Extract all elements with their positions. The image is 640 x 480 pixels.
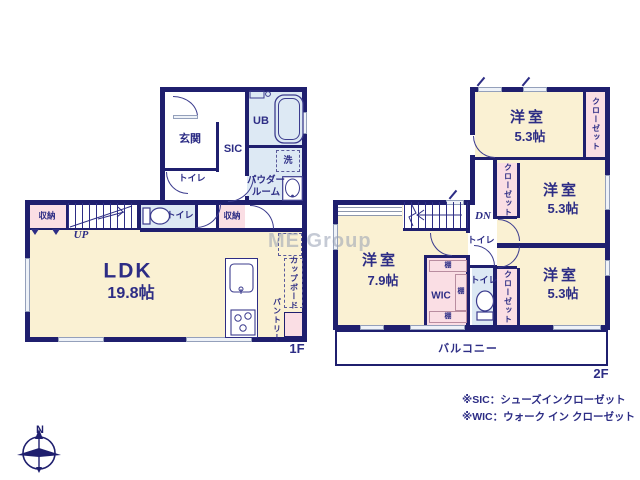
bedroom4-size: 7.9帖 [367, 274, 398, 288]
window [25, 258, 30, 312]
shelf-label: 棚 [445, 262, 452, 270]
bedroom2-label: 洋室 [543, 183, 579, 200]
closet3-label: クローゼット [503, 270, 514, 324]
wall [470, 87, 475, 135]
up-label: UP [74, 229, 89, 241]
kitchen-sink-icon [229, 263, 254, 293]
wic-label: WIC [431, 291, 450, 302]
toilet-label: トイレ [166, 211, 193, 221]
bedroom1-label: 洋室 [510, 110, 546, 127]
stove-icon [230, 309, 256, 336]
dn-label: DN [475, 210, 491, 222]
ldk-area [30, 228, 302, 337]
wall [160, 87, 165, 205]
window [410, 325, 465, 330]
laundry-label: 洗 [283, 156, 292, 166]
wic-note: ※WIC：ウォーク イン クローゼット [462, 409, 635, 424]
shelf-label: 棚 [445, 313, 452, 321]
floorplan-canvas: 玄関 SIC UB 洗 パウダー ルーム トイレ トイレ 収納 収納 UP LD… [0, 0, 640, 480]
window [360, 325, 384, 330]
ldk-label: LDK [103, 259, 152, 282]
window-tick [449, 190, 457, 199]
toilet-label: トイレ [178, 174, 205, 184]
closet-door-mark [52, 229, 60, 235]
bathtub-icon [274, 94, 304, 144]
entrance-label: 玄関 [179, 133, 201, 145]
sic-label: SIC [224, 143, 242, 155]
sic-note: ※SIC：シューズインクローゼット [462, 392, 626, 407]
wall [160, 87, 307, 92]
vanity-sink-icon [282, 176, 303, 201]
window [58, 337, 104, 342]
toilet-label: トイレ [467, 236, 494, 246]
bedroom3-label: 洋室 [543, 268, 579, 285]
wall [333, 200, 338, 330]
wall [137, 200, 141, 228]
bedroom3-size: 5.3帖 [547, 287, 578, 301]
bedroom4-label: 洋室 [362, 253, 398, 270]
bedroom1-size: 5.3帖 [514, 130, 545, 144]
closet2-label: クローゼット [503, 163, 514, 217]
bedroom2-size: 5.3帖 [547, 202, 578, 216]
wall [163, 168, 218, 171]
wall [517, 163, 520, 218]
wall [245, 196, 249, 205]
closet1-label: クローゼット [591, 97, 602, 151]
wall [216, 122, 219, 172]
window [478, 87, 502, 92]
shelf-label: 棚 [458, 288, 465, 296]
floor2-label: 2F [593, 367, 608, 381]
window-tick [477, 77, 485, 86]
bath-counter-icon [250, 90, 272, 99]
window [605, 175, 610, 210]
wall [424, 255, 427, 325]
window [605, 260, 610, 276]
wall [247, 145, 302, 148]
toilet-icon [474, 290, 496, 322]
pantry-label: パントリー [272, 298, 283, 343]
powder-room-label-1: パウダー [247, 176, 285, 186]
balcony-label: バルコニー [438, 343, 498, 355]
window [553, 325, 601, 330]
storage-label: 収納 [223, 211, 240, 220]
stairs-down-arrow [404, 202, 468, 228]
wall [470, 155, 475, 205]
compass-north-label: N [36, 424, 44, 436]
wall [245, 92, 249, 176]
window-tick [522, 77, 530, 86]
toilet-label: トイレ [470, 276, 497, 286]
ldk-size-label: 19.8帖 [107, 285, 154, 303]
stairs-up-arrow [68, 203, 137, 228]
cupboard-label: カップボード [289, 256, 300, 310]
wall [517, 268, 520, 325]
watermark: ME Group [268, 230, 372, 253]
floor1-label: 1F [289, 342, 304, 356]
wall [403, 228, 470, 231]
pantry-area [284, 312, 303, 337]
ub-label: UB [253, 115, 269, 127]
closet-door-mark [31, 229, 39, 235]
window [523, 87, 547, 92]
wall [583, 92, 586, 157]
powder-room-label-2: ルーム [252, 188, 280, 198]
wall [493, 159, 497, 219]
door-leaf [173, 115, 198, 119]
storage-label: 収納 [38, 211, 55, 220]
